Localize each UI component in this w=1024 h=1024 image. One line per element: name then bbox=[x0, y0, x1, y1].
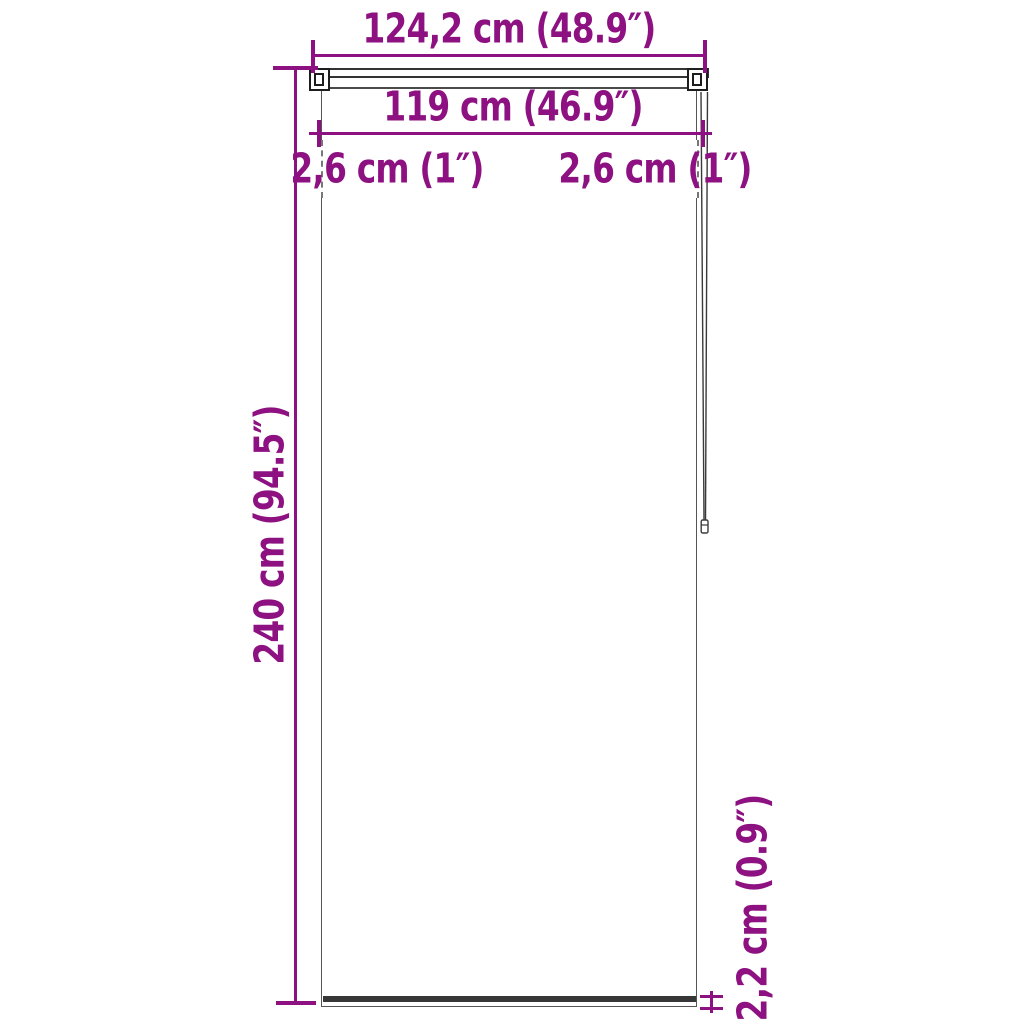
dim-line-outer-width bbox=[313, 54, 705, 57]
dim-line-inner-width bbox=[309, 132, 712, 135]
label-left-bracket-offset: 2,6 cm (1″) bbox=[290, 149, 483, 190]
label-bottom-bar-height: 2,2 cm (0.9″) bbox=[733, 795, 774, 1022]
left-bracket-detail bbox=[314, 73, 324, 86]
label-drop-height: 240 cm (94.5″) bbox=[250, 405, 291, 664]
dim-tick-height-bottom bbox=[276, 1001, 316, 1005]
dim-tick-bottom-bar-top bbox=[700, 995, 723, 998]
label-inner-width: 119 cm (46.9″) bbox=[383, 87, 642, 128]
dim-tick-bottom-bar-bottom bbox=[700, 1007, 723, 1010]
blind-fabric-panel bbox=[321, 88, 697, 1007]
label-right-bracket-offset: 2,6 cm (1″) bbox=[558, 149, 751, 190]
cord-end-cap bbox=[701, 520, 708, 533]
dim-tick-inner-width-right bbox=[701, 120, 705, 147]
dim-line-height bbox=[294, 68, 297, 1004]
label-outer-width: 124,2 cm (48.9″) bbox=[363, 9, 656, 50]
right-bracket-detail bbox=[692, 73, 702, 86]
dim-tick-outer-width-right bbox=[703, 40, 707, 73]
top-mounting-rail bbox=[309, 68, 709, 78]
dim-tick-height-top bbox=[273, 66, 318, 70]
roller-blind-dimension-diagram: 124,2 cm (48.9″) 119 cm (46.9″) 2,6 cm (… bbox=[0, 0, 1024, 1024]
bottom-weight-bar bbox=[323, 996, 696, 1002]
dim-tick-inner-width-left bbox=[317, 120, 321, 147]
